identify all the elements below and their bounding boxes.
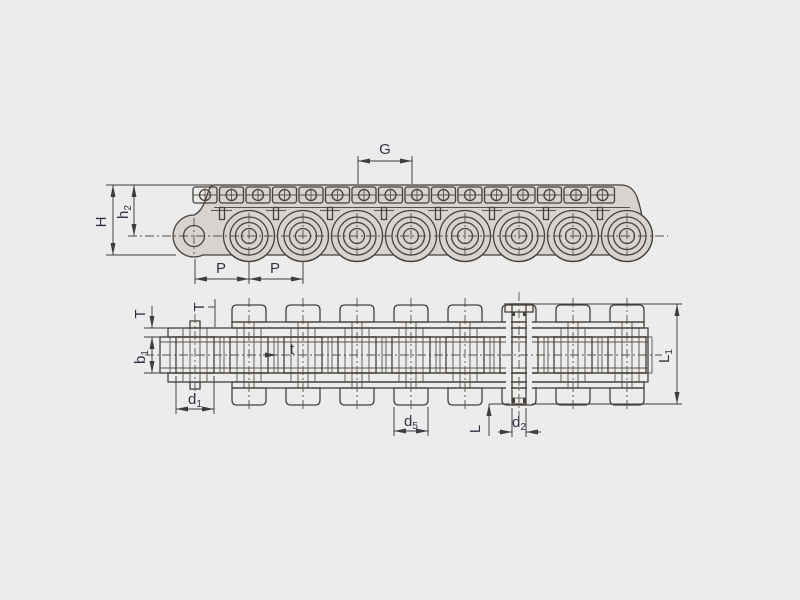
dim-label-T1: T [132,309,149,318]
attachment-plate-strip [232,382,644,388]
dim-label-L: L [467,425,484,433]
attachment-plate-strip [232,322,644,328]
pin-groove [512,312,515,316]
dim-label-P2: P [270,260,280,277]
dim-label-b1: b1 [132,350,151,364]
dim-d2: d2 [498,408,541,437]
dim-label-d1: d1 [188,391,202,410]
dim-label-H: H [93,217,110,228]
dim-label-T2: T [191,302,208,311]
dim-L: L [467,404,510,436]
dim-label-d5: d5 [404,413,418,432]
dim-label-h2: h2 [115,205,134,219]
dim-d5: d5 [394,407,428,436]
dim-label-t: t [290,341,295,358]
dim-h2: h2 [115,185,134,236]
dim-T1: T [132,306,178,337]
pin-groove [523,312,526,316]
outer-plate-strip [168,328,648,337]
pin-groove [523,398,526,403]
side-view-chain [128,185,668,262]
dim-label-d2: d2 [512,414,526,433]
dim-label-G: G [379,141,391,158]
dim-label-P1: P [216,260,226,277]
dim-label-L1: L1 [656,349,675,363]
pin-groove [512,398,515,403]
outer-plate-strip [168,373,648,382]
dim-G: G [358,141,412,184]
chain-drawing: H h2 G P P T b1 T d1 [0,0,800,600]
plan-view-chain [145,292,662,416]
dim-P: P P [195,259,303,284]
